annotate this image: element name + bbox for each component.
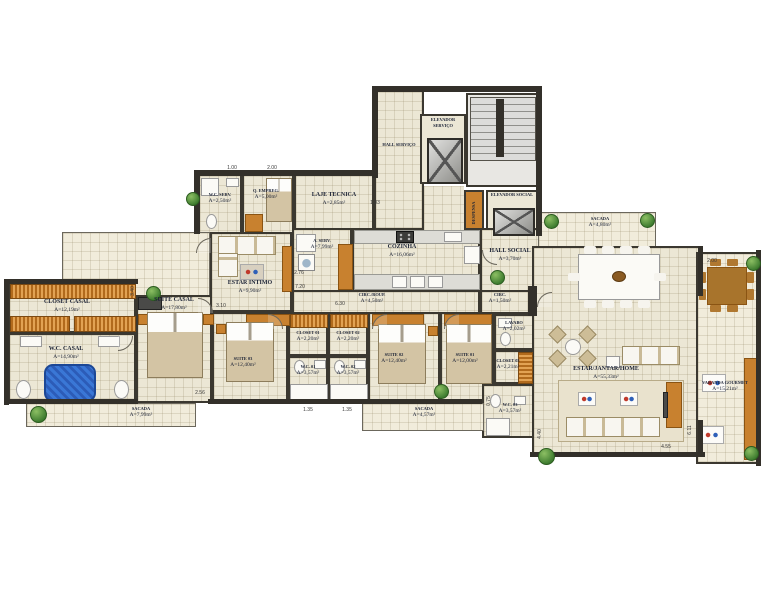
fridge: [464, 246, 480, 264]
room-area: A=7,99m²: [311, 244, 334, 251]
plant-icon: [30, 406, 47, 423]
toilet: [500, 332, 511, 346]
room-name: W.C. 03: [503, 402, 518, 407]
room-area: A=3,70m²: [489, 256, 530, 263]
room-area: A=3,57m²: [499, 408, 522, 415]
wardrobe: [330, 314, 368, 328]
wardrobe: [74, 316, 136, 332]
toilet: [16, 380, 31, 399]
side-table: [700, 426, 724, 444]
wardrobe: [10, 284, 136, 299]
dimension-label: 0.75: [486, 396, 492, 406]
room-area: A=4,80m²: [589, 222, 612, 229]
label-circ-roup: CIRC./ROUP. A=4,50m²: [359, 292, 386, 305]
label-elevador-servico: ELEVADOR SERVIÇO: [423, 117, 463, 128]
room-name: SACADA: [591, 216, 609, 221]
room-name: SUITE 02: [385, 352, 404, 357]
room-name: SACADA: [132, 406, 150, 411]
dimension-label: 1.35: [342, 407, 352, 413]
dimension-label: 6.30: [335, 301, 345, 307]
dimension-label: 6.11: [687, 425, 693, 434]
coffee-table: [620, 392, 638, 406]
room-name: ESTAR INTIMO: [228, 280, 272, 286]
label-circ: CIRC. A=1,50m²: [489, 292, 512, 305]
label-estar-intimo: ESTAR INTIMO A=9,90m²: [228, 280, 272, 295]
room-area: A=1,50m²: [489, 298, 512, 305]
shower-tray: [486, 418, 510, 436]
tv-cabinet: [666, 382, 682, 428]
room-name: CLOSET 02: [336, 330, 359, 335]
island-basin: [392, 276, 407, 288]
room-hall-servico: [374, 90, 424, 235]
island-basin: [410, 276, 425, 288]
dimension-label: 3.10: [216, 303, 226, 309]
room-name: CLOSET CASAL: [44, 299, 90, 305]
label-varanda-gourmet: VARANDA GOURMET A=15,21m²: [702, 380, 748, 393]
label-q-empreg: Q. EMPREG. A=5,00m²: [253, 188, 279, 201]
label-cozinha: COZINHA A=16,06m²: [388, 244, 417, 259]
label-estar-jantar: ESTAR/JANTAR/HOME A=55,33m²: [573, 366, 639, 381]
room-sacada-bottom-left: [26, 403, 196, 427]
room-area: A=55,33m²: [573, 374, 639, 381]
floor-patch-service: [424, 186, 464, 233]
plant-icon: [186, 192, 200, 206]
elevator-social-car: [493, 208, 535, 236]
label-wc-03: W.C. 03 A=3,57m²: [499, 402, 522, 415]
wall-estar-varanda-top: [698, 246, 703, 296]
gourmet-chairs-right: [747, 272, 754, 283]
dimension-label: 1.35: [303, 407, 313, 413]
wall-service-left: [372, 86, 378, 178]
room-area: A=12,40m²: [230, 362, 255, 369]
toilet: [114, 380, 129, 399]
room-name: SUITE CASAL: [154, 297, 194, 303]
wall-service-right: [536, 86, 542, 236]
label-suite-casal: SUITE CASAL A=17,80m²: [154, 297, 194, 312]
label-a-serv: A. SERV. A=7,99m²: [311, 238, 334, 251]
wall-upper-top: [194, 170, 376, 176]
room-name: W.C. 01: [301, 364, 316, 369]
label-lavabo: LAVABO A=2,02m²: [503, 320, 526, 333]
label-elevador-social: ELEVADOR SOCIAL: [489, 192, 535, 198]
dimension-label: 7.20: [295, 284, 305, 290]
label-sacada-bl: SACADA A=7,99m²: [130, 406, 153, 419]
plant-icon: [490, 270, 505, 285]
room-area: A=17,80m²: [154, 305, 194, 312]
sofa: [622, 346, 680, 365]
room-name: SUITE 01: [456, 352, 475, 357]
room-area: A=12,40m²: [381, 358, 406, 365]
label-sacada-bm: SACADA A=4,57m²: [413, 406, 436, 419]
room-area: A=12,19m²: [44, 307, 90, 314]
dimension-label: 2.00: [707, 258, 717, 264]
wall-estar-varanda-bottom: [698, 420, 703, 456]
room-name: CLOSET 03: [496, 358, 519, 363]
label-wc-02: W.C. 02 A=3,57m²: [337, 364, 360, 377]
gourmet-table: [707, 267, 747, 305]
room-area: A=2,21m²: [496, 364, 519, 371]
wardrobe: [518, 352, 533, 384]
gourmet-chairs-bottom: [710, 305, 721, 312]
label-suite-03: SUITE 03 A=12,40m²: [230, 356, 255, 369]
label-hall-servico: HALL SERVIÇO: [380, 142, 418, 148]
room-area: A=2,20m²: [336, 336, 359, 343]
bed-suite-03: [226, 322, 274, 382]
room-area: A=2,50m²: [209, 198, 232, 205]
sofa-chaise: [218, 253, 238, 277]
wardrobe: [10, 316, 70, 332]
plant-icon: [640, 213, 655, 228]
wall-leftwing-top: [4, 279, 138, 284]
room-name: SUITE 03: [234, 356, 253, 361]
room-name: CIRC.: [494, 292, 506, 297]
room-area: A=2,02m²: [503, 326, 526, 333]
room-name: ELEVADOR SERVIÇO: [431, 117, 455, 128]
room-name: HALL SOCIAL: [489, 248, 530, 254]
bed-suite-casal: [147, 312, 203, 378]
rug-estar-intimo: [240, 264, 264, 280]
room-name: SACADA: [415, 406, 433, 411]
washing-machine: [298, 254, 315, 271]
wall-circ-estar-junction: [528, 286, 537, 316]
room-area: A=2,85m²: [312, 200, 356, 207]
room-name: CIRC./ROUP.: [359, 292, 386, 297]
dimension-label: 2.76: [294, 270, 304, 276]
room-name: LAVABO: [505, 320, 523, 325]
wall-estar-bottom: [530, 452, 705, 457]
dimension-label: 1.00: [227, 165, 237, 171]
nightstand: [203, 314, 214, 325]
sink: [226, 178, 239, 187]
sink: [98, 336, 120, 347]
dining-chairs: [584, 246, 596, 254]
laundry-cabinet: [338, 244, 353, 290]
label-closet-03: CLOSET 03 A=2,21m²: [496, 358, 519, 371]
label-laje-tecnica: LAJE TECNICA A=2,85m²: [312, 192, 356, 207]
room-name: ELEVADOR SOCIAL: [491, 192, 533, 197]
centerpiece-bowl: [612, 271, 626, 282]
wall-leftwing-bottom: [4, 399, 138, 404]
label-wc-01: W.C. 01 A=3,57m²: [297, 364, 320, 377]
nightstand: [428, 326, 438, 336]
elevator-servico-car: [427, 138, 463, 184]
plant-icon: [544, 214, 559, 229]
label-wc-serv: W.C. SERV. A=2,50m²: [209, 192, 232, 205]
plant-icon: [746, 256, 761, 271]
room-name: W.C. 02: [341, 364, 356, 369]
room-name: VARANDA GOURMET: [702, 380, 748, 385]
maid-wardrobe: [245, 214, 263, 232]
tv-unit: [282, 246, 292, 292]
wall-varanda-right: [756, 250, 761, 466]
label-hall-social: HALL SOCIAL A=3,70m²: [489, 248, 530, 263]
room-area: A=14,90m²: [49, 354, 84, 361]
floor-plan: HALL SERVIÇO ELEVADOR SERVIÇO ELEVADOR S…: [0, 0, 764, 600]
toilet: [206, 214, 217, 229]
cooktop: [396, 231, 414, 243]
room-area: A=2,20m²: [296, 336, 319, 343]
room-name: W.C. CASAL: [49, 346, 84, 352]
room-area: A=3,57m²: [337, 370, 360, 377]
room-area: A=16,06m²: [388, 252, 417, 259]
room-area: A=3,57m²: [297, 370, 320, 377]
wall-leftwing-left: [4, 279, 9, 405]
nightstand: [216, 324, 226, 334]
room-name: DESPENSA: [471, 202, 476, 225]
label-closet-01: CLOSET 01 A=2,20m²: [296, 330, 319, 343]
dimension-label: 2.56: [195, 390, 205, 396]
label-sacada-top: SACADA A=4,80m²: [589, 216, 612, 229]
room-area: A=9,90m²: [228, 288, 272, 295]
room-name: W.C. SERV.: [209, 192, 232, 197]
label-closet-casal: CLOSET CASAL A=12,19m²: [44, 299, 90, 314]
label-suite-02: SUITE 02 A=12,40m²: [381, 352, 406, 365]
room-name: COZINHA: [388, 244, 417, 250]
kitchen-sink: [444, 232, 462, 242]
dimension-label: 4.40: [537, 429, 543, 439]
room-name: CLOSET 01: [296, 330, 319, 335]
label-suite-01: SUITE 01 A=12,00m²: [452, 352, 477, 365]
sofa: [566, 417, 660, 437]
dimension-label: 2.00: [267, 165, 277, 171]
plant-icon: [434, 384, 449, 399]
room-circ-roup: [292, 290, 480, 314]
label-closet-02: CLOSET 02 A=2,20m²: [336, 330, 359, 343]
island-basin: [428, 276, 443, 288]
side-table: [565, 339, 581, 355]
bathtub: [44, 364, 96, 402]
label-wc-casal: W.C. CASAL A=14,90m²: [49, 346, 84, 361]
room-name: A. SERV.: [313, 238, 330, 243]
label-despensa: DESPENSA: [471, 202, 477, 225]
wall-service-top: [372, 86, 542, 92]
room-area: A=15,21m²: [702, 386, 748, 393]
plant-icon: [538, 448, 555, 465]
dimension-label: 1.83: [370, 200, 380, 206]
room-area: A=12,00m²: [452, 358, 477, 365]
coffee-table: [578, 392, 596, 406]
room-name: LAJE TECNICA: [312, 192, 356, 198]
plant-icon: [744, 446, 759, 461]
room-area: A=5,00m²: [253, 194, 279, 201]
room-name: ESTAR/JANTAR/HOME: [573, 366, 639, 372]
dimension-label: 3.40: [130, 286, 136, 296]
wardrobe: [290, 314, 328, 328]
dimension-label: 4.55: [661, 444, 671, 450]
room-area: A=4,50m²: [359, 298, 386, 305]
tv: [663, 392, 668, 418]
sink: [20, 336, 42, 347]
room-area: A=4,57m²: [413, 412, 436, 419]
stairs-spine-wall: [496, 99, 504, 157]
room-name: Q. EMPREG.: [253, 188, 279, 193]
room-area: A=7,99m²: [130, 412, 153, 419]
room-name: HALL SERVIÇO: [382, 142, 415, 147]
wall-mainband-bottom: [208, 399, 482, 404]
